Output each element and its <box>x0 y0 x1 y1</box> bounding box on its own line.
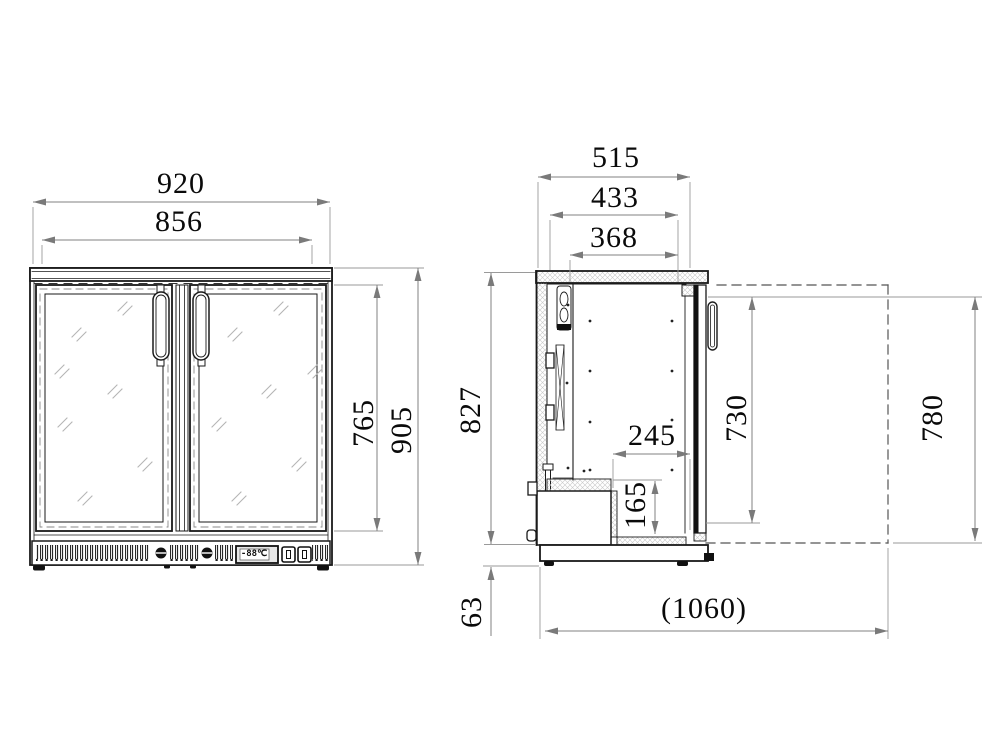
floor-over-compressor <box>547 479 611 491</box>
hinge-bracket-upper <box>546 353 554 368</box>
dim-label-door-width: 856 <box>155 205 203 239</box>
side-front-top-rail <box>682 285 695 296</box>
side-door-handle <box>708 302 717 350</box>
dim-label-overall-depth: 515 <box>592 141 640 175</box>
side-base <box>540 545 708 561</box>
side-view <box>527 271 888 566</box>
front-top-band <box>30 268 332 284</box>
power-switch-icon <box>282 547 295 562</box>
dim-label-total-depth-open: (1060) <box>661 592 747 626</box>
evaporator-fan <box>557 286 571 330</box>
side-worktop <box>536 271 708 283</box>
front-view <box>30 268 332 571</box>
dim-label-overall-width: 920 <box>157 167 205 201</box>
dim-label-body-depth: 433 <box>591 181 639 215</box>
temperature-display-value: -88℃ <box>241 549 267 559</box>
lock-knob-left <box>156 548 167 559</box>
cooler-technical-drawing <box>0 0 1000 750</box>
dim-label-door-height: 765 <box>347 399 381 447</box>
lock-knob-right <box>202 548 213 559</box>
light-switch-icon <box>298 547 311 562</box>
front-center-mullion <box>176 285 188 531</box>
side-door <box>694 285 706 541</box>
recess-step-face <box>611 491 617 537</box>
left-door-handle <box>153 285 169 366</box>
dim-label-door-open-inner: 730 <box>720 394 754 442</box>
dim-label-door-open-outer: 780 <box>916 394 950 442</box>
door-bottom-pivot <box>704 553 714 561</box>
drawing-canvas: 920 856 765 905 515 433 368 827 63 245 1… <box>0 0 1000 750</box>
hinge-bracket-lower <box>546 405 554 420</box>
dim-label-worktop-height: 827 <box>454 386 488 434</box>
interior-floor <box>617 537 686 545</box>
dim-label-recess-depth: 245 <box>628 419 676 453</box>
compressor-compartment <box>537 491 611 545</box>
vent-grille <box>32 541 330 565</box>
dim-label-base-height: 63 <box>455 596 489 628</box>
back-wall-fitting <box>528 482 537 495</box>
right-door-handle <box>193 285 209 366</box>
dim-label-interior-depth: 368 <box>590 221 638 255</box>
dim-label-recess-height: 165 <box>619 481 653 529</box>
back-wall-stud <box>527 530 536 541</box>
dim-label-overall-height: 905 <box>385 406 419 454</box>
